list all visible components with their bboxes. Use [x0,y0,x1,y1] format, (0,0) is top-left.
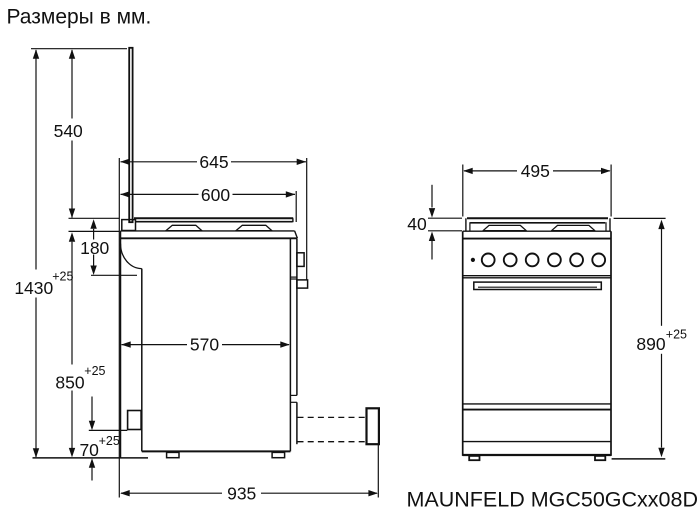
svg-text:+25: +25 [52,270,73,284]
svg-text:Размеры в мм.: Размеры в мм. [7,5,152,28]
svg-text:MAUNFELD MGC50GCxx08D: MAUNFELD MGC50GCxx08D [407,487,699,511]
svg-text:890: 890 [636,334,665,354]
svg-text:540: 540 [54,121,83,141]
svg-text:70: 70 [79,440,99,460]
svg-text:850: 850 [55,373,84,393]
svg-text:935: 935 [227,483,256,503]
svg-text:180: 180 [80,238,109,258]
svg-text:+25: +25 [99,434,120,448]
svg-text:495: 495 [521,161,550,181]
svg-text:570: 570 [190,335,219,355]
svg-text:+25: +25 [666,328,687,342]
svg-text:1430: 1430 [14,278,53,298]
svg-text:600: 600 [201,185,230,205]
svg-text:+25: +25 [84,364,105,378]
svg-text:645: 645 [199,152,228,172]
svg-text:40: 40 [407,214,427,234]
